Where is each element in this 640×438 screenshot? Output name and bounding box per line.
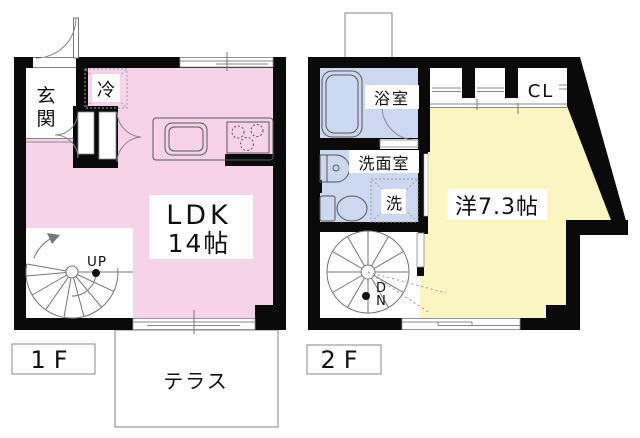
ldk-name-label: LDK (166, 200, 232, 231)
f1-wall-right (273, 57, 286, 330)
f2-wall-left (308, 57, 320, 330)
closet-stub-wall-1 (462, 68, 475, 98)
stair-door-stub (417, 267, 424, 276)
stair-up-start-dot (92, 269, 100, 277)
terrace-area: テラス (115, 330, 278, 427)
stair-hall-door-panel (417, 233, 424, 267)
f1-corner-step-wall (255, 305, 286, 330)
svg-text:2F: 2F (320, 346, 365, 374)
ldk-size-label: 14帖 (168, 229, 231, 258)
ldk-label: LDK 14帖 (149, 195, 253, 259)
svg-text:洋7.3帖: 洋7.3帖 (455, 195, 539, 220)
stair-down-start-dot (362, 292, 370, 300)
f2-bottom-window (402, 319, 520, 330)
svg-text:洗面室: 洗面室 (358, 154, 409, 173)
closet-label: CL (528, 81, 555, 102)
bathroom-door-leaf (380, 140, 418, 147)
svg-text:関: 関 (36, 108, 55, 130)
svg-text:1F: 1F (30, 346, 75, 374)
f1-room-fills (20, 62, 273, 324)
hall-door-leaf-right (99, 112, 116, 159)
floor-plan-drawing: テラス (0, 0, 640, 438)
f1-stair-area (26, 228, 133, 318)
floor-plan-canvas: テラス (0, 0, 640, 438)
washer-label: 洗 (386, 194, 402, 213)
terrace-label: テラス (163, 369, 229, 393)
entrance-door-opening (33, 58, 76, 68)
f2-floor-badge: 2F (307, 345, 381, 374)
bathroom-label: 浴室 (365, 85, 419, 109)
svg-text:玄: 玄 (36, 85, 55, 107)
hall-door-leaf-left (78, 112, 94, 154)
wash-stair-divider-wall (308, 222, 424, 232)
entrance-label: 玄 関 (36, 85, 55, 130)
fridge-label: 冷 (97, 80, 115, 101)
washroom-label: 洗面室 (349, 150, 419, 173)
f2-corner-notch-wall (546, 305, 580, 330)
f1-floor-badge: 1F (12, 344, 95, 374)
stair-down-label-n: N (376, 294, 386, 309)
western-room-label: 洋7.3帖 (447, 189, 547, 220)
bathroom-right-wall (418, 57, 430, 152)
svg-text:浴室: 浴室 (374, 89, 410, 108)
stair-up-label: UP (87, 254, 107, 270)
closet-stub-wall-2 (505, 68, 518, 98)
f2-wall-top (308, 57, 580, 68)
f1-entrance-partition (76, 57, 88, 113)
f1-wall-left (14, 57, 26, 330)
balcony-protrusion (345, 13, 392, 59)
washroom-sliding-door (424, 154, 428, 216)
